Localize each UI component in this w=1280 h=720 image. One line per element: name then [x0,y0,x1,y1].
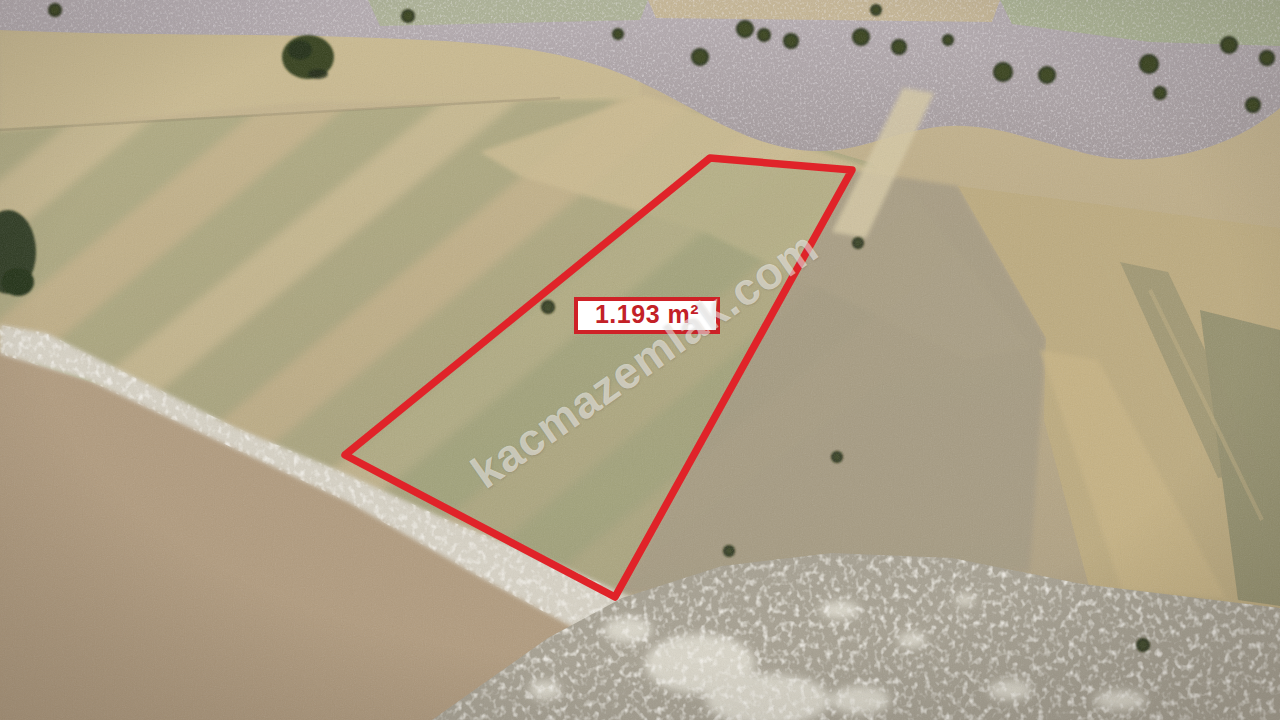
aerial-photo-scene: 1.193 m² kacmazemlak.com [0,0,1280,720]
